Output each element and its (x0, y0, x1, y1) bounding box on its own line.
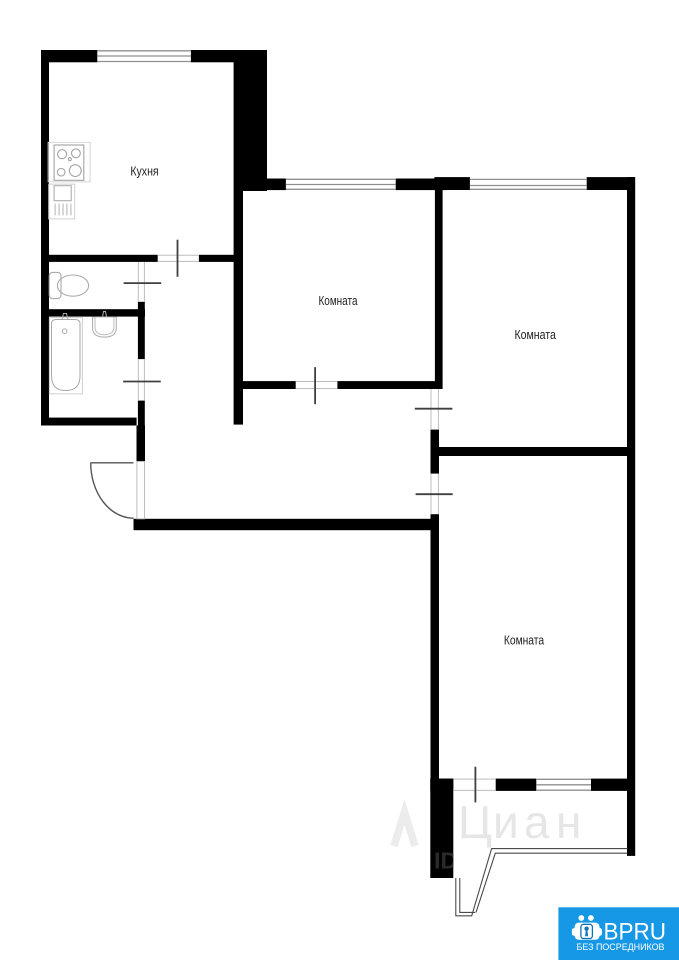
svg-text:Комната: Комната (514, 328, 556, 342)
svg-text:Комната: Комната (319, 294, 358, 308)
svg-text:Ц: Ц (458, 796, 492, 848)
svg-text:Комната: Комната (504, 633, 544, 647)
svg-text:а: а (524, 796, 550, 848)
svg-text:БЕЗ ПОСРЕДНИКОВ: БЕЗ ПОСРЕДНИКОВ (577, 942, 665, 952)
svg-text:Кухня: Кухня (130, 164, 158, 178)
svg-text:и: и (493, 796, 519, 848)
svg-text:н: н (556, 796, 581, 848)
